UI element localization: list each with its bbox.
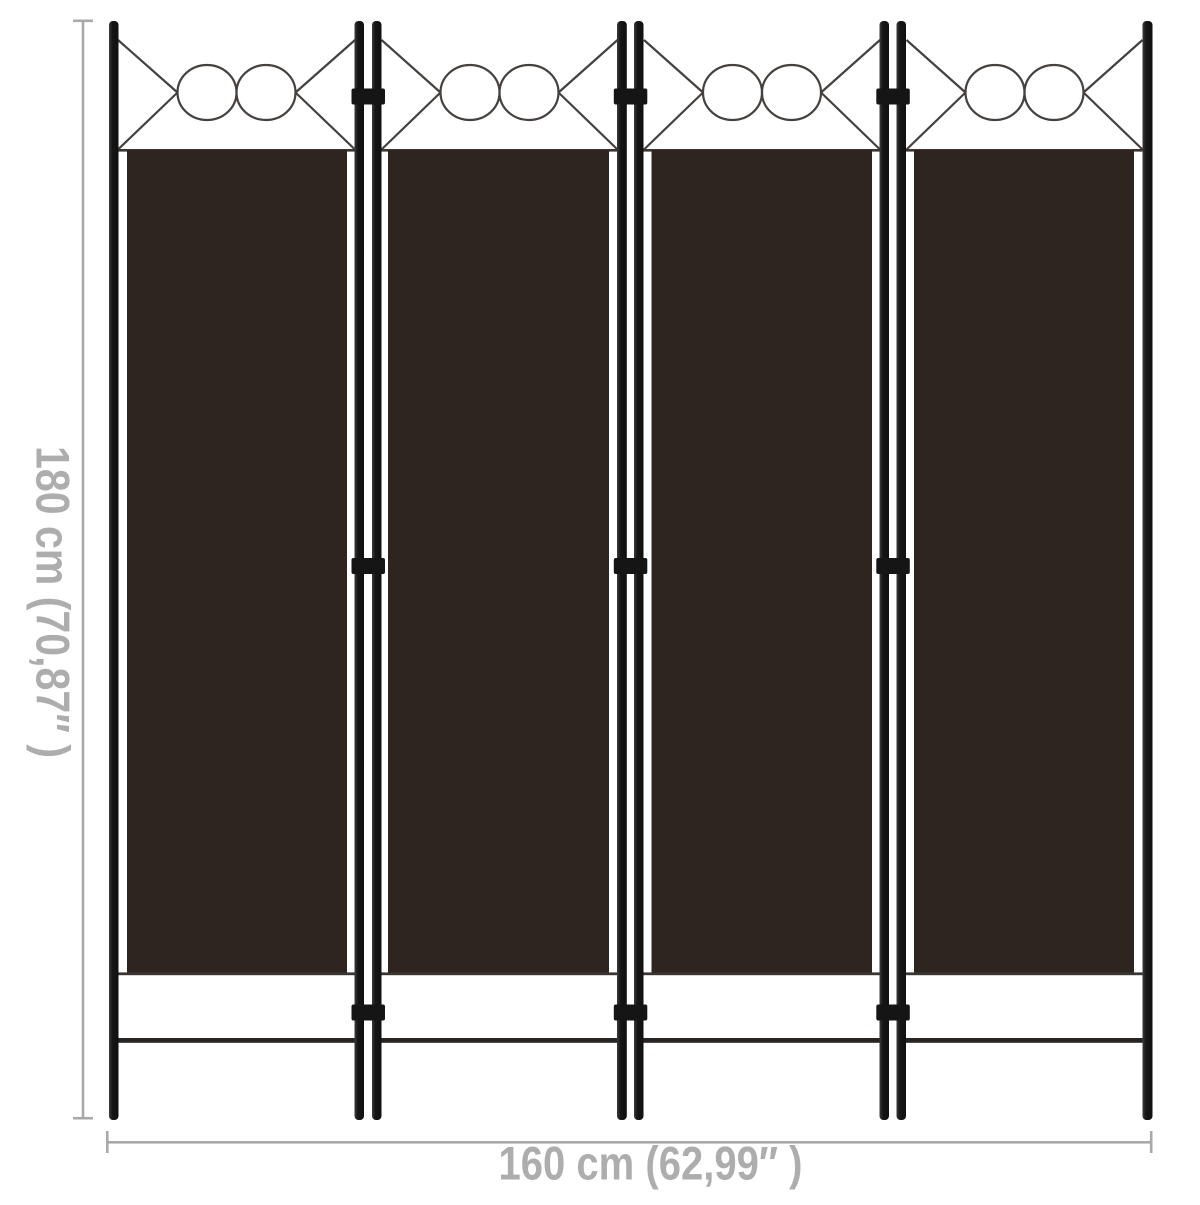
svg-text:160 cm (62,99″ ): 160 cm (62,99″ ) (499, 1137, 803, 1190)
svg-text:180 cm (70,87″ ): 180 cm (70,87″ ) (27, 446, 80, 758)
